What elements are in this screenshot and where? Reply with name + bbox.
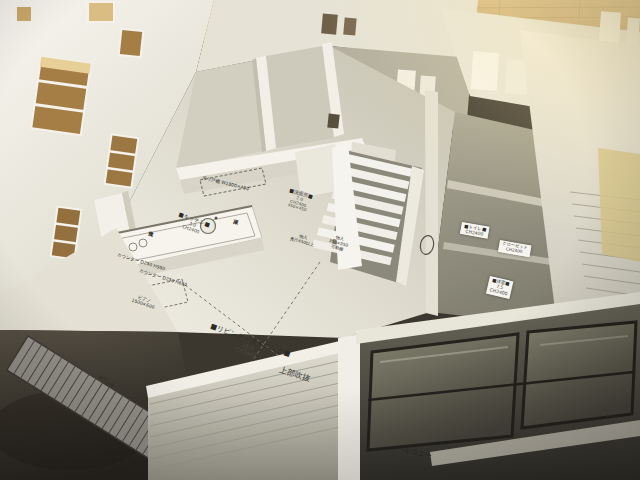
architecture-model-photo: ■リビング・ダイニング■ 15.0 CH2400 上部吹抜 ■キッチン■ 3.0… <box>0 0 640 480</box>
model-geometry <box>0 0 640 480</box>
vignette <box>0 0 640 480</box>
